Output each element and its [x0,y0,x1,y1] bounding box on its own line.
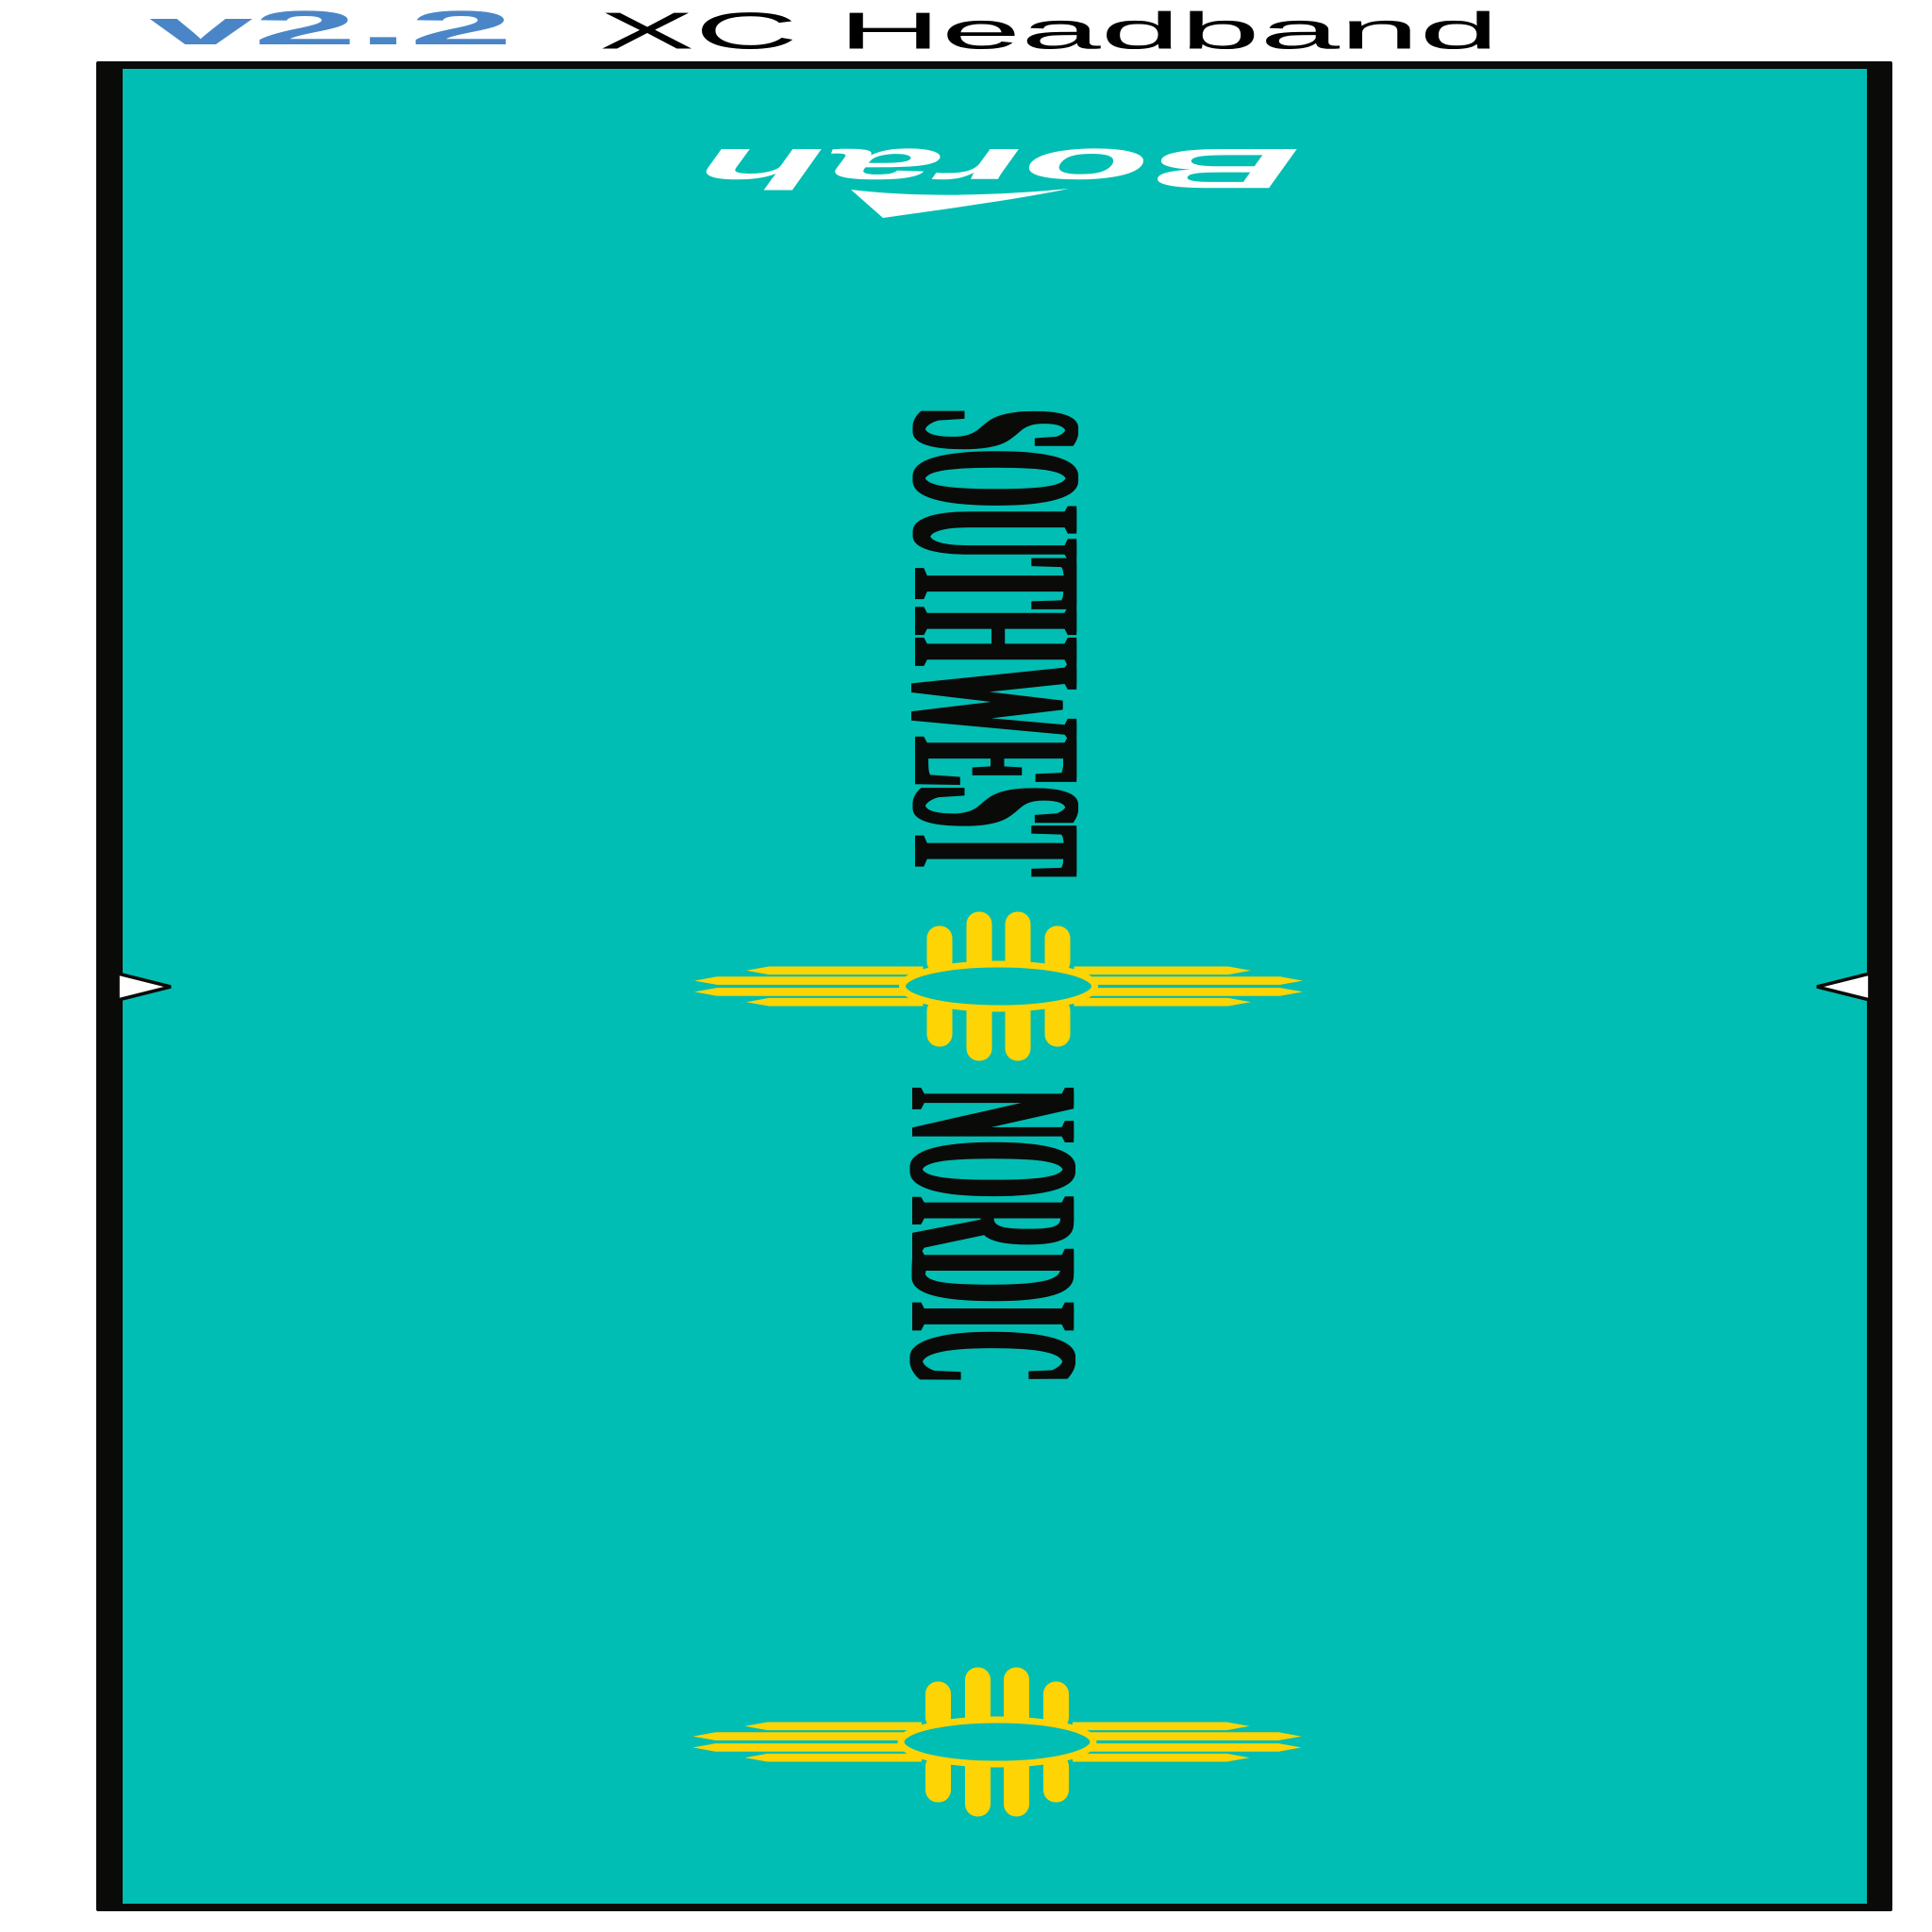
svg-text:Borah: Borah [697,137,1300,200]
svg-text:SOUTHWEST: SOUTHWEST [861,412,1136,878]
svg-text:NORDIC: NORDIC [858,1091,1133,1386]
svg-text:v2.2: v2.2 [149,1,513,55]
svg-text:XC Headband: XC Headband [599,2,1499,59]
